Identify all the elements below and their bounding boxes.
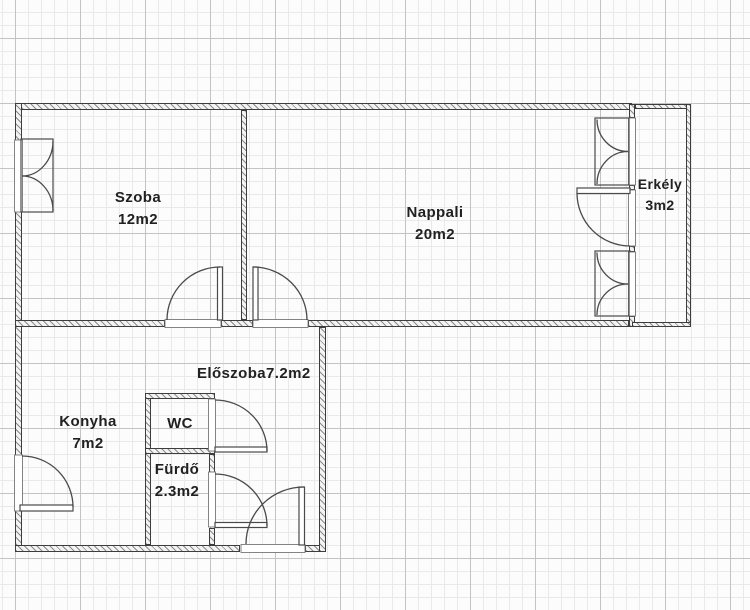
erkely-window1-arc-bottom — [597, 152, 628, 185]
room-area: 7m2 — [59, 433, 116, 455]
furdo-door-opening — [209, 472, 216, 527]
room-name: Szoba — [115, 187, 161, 209]
door-leaves — [20, 188, 630, 545]
erkely-window2-arc-top — [597, 253, 628, 285]
wc-door-arc — [215, 400, 267, 451]
room-name: Fürdő — [155, 459, 200, 481]
entry-door-leaf — [299, 487, 305, 545]
room-name: Előszoba — [197, 365, 266, 382]
furdo-door-leaf — [215, 523, 267, 528]
room-area: 12m2 — [115, 209, 161, 231]
balcony-door-leaf — [577, 188, 630, 194]
konyha-window-opening — [15, 455, 23, 511]
room-name: Erkély — [638, 174, 682, 195]
room-area: 20m2 — [407, 224, 464, 246]
wc-door-leaf — [215, 447, 267, 452]
nappali-door-leaf — [253, 267, 258, 320]
room-area: 7.2m2 — [266, 365, 311, 382]
room-area: 2.3m2 — [155, 481, 200, 503]
room-label-furdo: Fürdő 2.3m2 — [155, 459, 200, 503]
room-area: 3m2 — [638, 195, 682, 216]
room-name: Nappali — [407, 202, 464, 224]
door-window-symbols — [0, 0, 750, 610]
entry-door-arc — [246, 487, 304, 544]
room-label-konyha: Konyha 7m2 — [59, 411, 116, 455]
floor-plan-canvas: Szoba 12m2 Nappali 20m2 Erkély 3m2 Elősz… — [0, 0, 750, 610]
room-label-eloszoba: Előszoba7.2m2 — [197, 363, 311, 385]
erkely-window2-arc-bottom — [597, 284, 628, 315]
szoba-door-leaf — [218, 267, 223, 320]
nappali-door-arc — [253, 267, 307, 320]
room-name: WC — [167, 413, 193, 435]
wc-door-opening — [209, 399, 216, 451]
room-label-wc: WC — [167, 413, 193, 435]
szoba-door-arc — [167, 267, 220, 320]
wall-openings — [15, 118, 636, 553]
szoba-door-threshold — [165, 320, 221, 328]
szoba-window-arc-bottom — [22, 176, 53, 211]
window-frames — [21, 118, 629, 316]
room-label-szoba: Szoba 12m2 — [115, 187, 161, 231]
swing-arcs — [22, 120, 630, 545]
konyha-window-arc — [22, 456, 73, 507]
entry-door-threshold — [241, 545, 305, 553]
balcony-door-arc — [577, 193, 630, 246]
room-label-nappali: Nappali 20m2 — [407, 202, 464, 246]
erkely-window1-arc-top — [597, 120, 628, 152]
furdo-door-arc — [215, 474, 267, 526]
nappali-door-threshold — [253, 320, 308, 328]
erkely-door-opening — [629, 190, 636, 246]
room-name: Konyha — [59, 411, 116, 433]
konyha-window-leaf — [20, 505, 73, 511]
szoba-window-arc-top — [22, 141, 53, 176]
room-label-erkely: Erkély 3m2 — [638, 174, 682, 216]
